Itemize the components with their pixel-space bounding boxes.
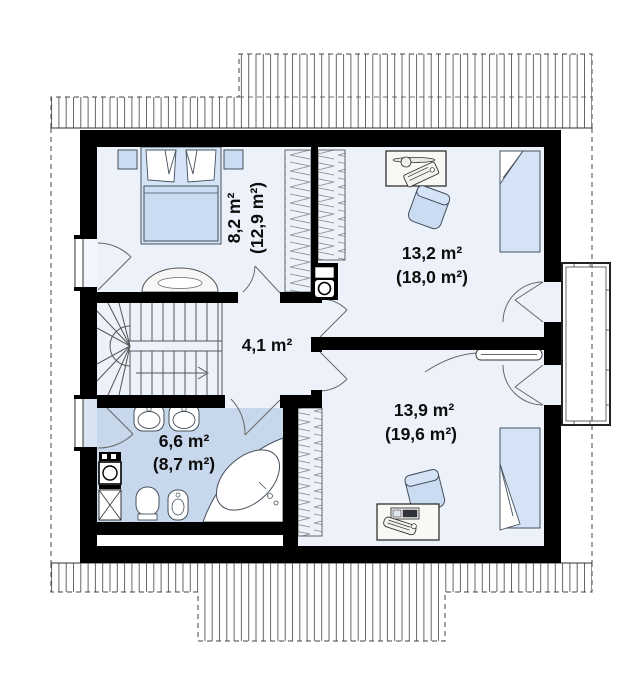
desk-top-right [386,151,446,188]
roof-overhang-top [51,54,592,128]
label-bedroom-left-total: (12,9 m²) [247,182,267,254]
wall-bathroom-top [97,395,225,408]
wall-top-rooms-divider [311,147,318,263]
label-bedroom-top-right-area: 13,2 m² [402,243,462,263]
toilet [136,487,159,520]
label-bedroom-bottom-right-area: 13,9 m² [394,400,454,420]
wall-exterior-bottom [80,546,561,563]
label-bathroom-total: (8,7 m²) [153,454,215,474]
wardrobe-bedroom-bottom-right [298,408,322,536]
desk-lamp-icon [393,158,435,163]
window-bathroom [74,395,97,451]
floor-plan-drawing: 8,2 m² (12,9 m²) 13,2 m² (18,0 m²) 4,1 m… [0,0,640,690]
roof-overhang-bottom [51,563,592,641]
bidet [168,490,188,520]
desk-bottom-right [377,504,439,540]
single-bed-top-right [500,151,540,252]
washing-machine [99,452,121,489]
label-bathroom-area: 6,6 m² [159,431,210,451]
wall-exterior-left [80,130,97,563]
wardrobe-bedroom-top-right [318,150,345,260]
wardrobe-bedroom-left [285,150,311,292]
nightstand-left [118,150,137,169]
label-bedroom-bottom-right-total: (19,6 m²) [385,424,457,444]
bathroom-sink-2 [169,404,199,431]
nightstand-right [224,150,243,169]
wall-exterior-right [544,130,561,563]
bathroom-cabinet [99,490,121,520]
window-bedroom-left [74,235,97,291]
void-strip-below-bathroom [97,535,283,546]
balcony [562,263,610,425]
wall-exterior-top [80,130,561,147]
label-bedroom-top-right-total: (18,0 m²) [396,267,468,287]
label-hallway-area: 4,1 m² [242,335,293,355]
floor-plan-page: 8,2 m² (12,9 m²) 13,2 m² (18,0 m²) 4,1 m… [0,0,640,690]
wall-bedroom-stairs [97,292,238,303]
doorway-balcony-top [544,282,561,322]
doorway-balcony-bottom [544,365,561,405]
wall-right-rooms-divider [322,337,544,350]
single-bed-bottom-right [500,428,540,530]
wall-bathroom-bottom [97,522,298,535]
chimney-vent [311,263,338,300]
label-bedroom-left-area: 8,2 m² [224,193,244,244]
bathroom-sink-1 [134,404,164,431]
